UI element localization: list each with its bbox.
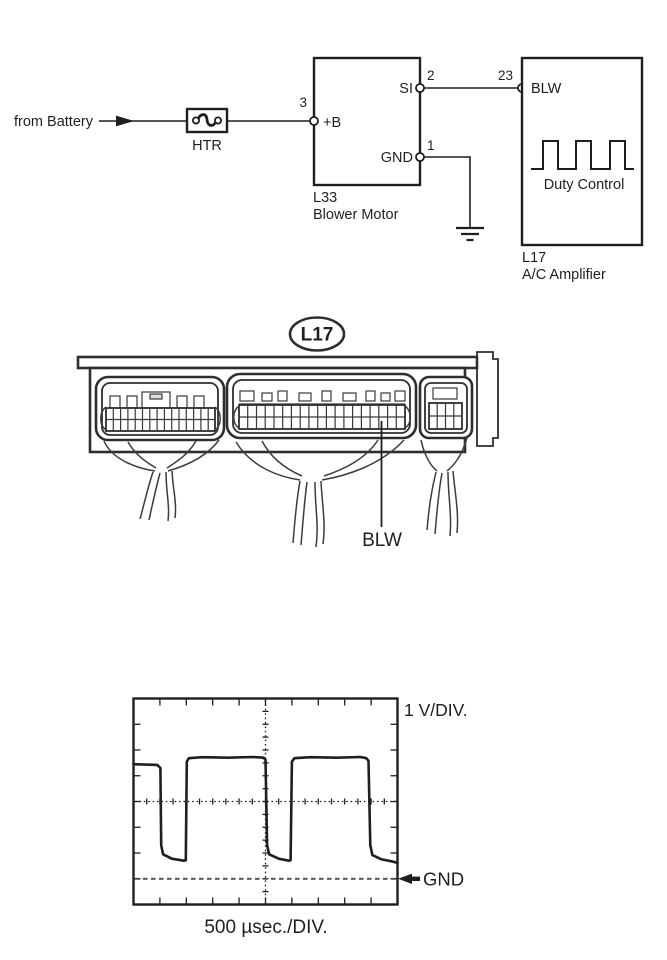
connector-left: [96, 377, 224, 440]
fuse-icon: [187, 109, 227, 132]
from-battery-label: from Battery: [14, 114, 94, 130]
service-manual-page: from Battery HTR 3 +B SI 2 GND 1 L33 Blo…: [0, 0, 667, 960]
pin-si-label: SI: [399, 81, 413, 97]
vertical-scale-label: 1 V/DIV.: [404, 700, 468, 720]
horizontal-scale-label: 500 µsec./DIV.: [204, 917, 327, 938]
pin-gnd: [416, 153, 424, 161]
ground-icon: [456, 228, 484, 240]
pin-b-plus: [310, 117, 318, 125]
gnd-reference-label: GND: [423, 869, 464, 890]
ac-amplifier-name: A/C Amplifier: [522, 267, 606, 283]
pin-si-number: 2: [427, 68, 435, 83]
diagram-canvas: from Battery HTR 3 +B SI 2 GND 1 L33 Blo…: [0, 0, 667, 960]
fuse-label: HTR: [192, 138, 222, 154]
blower-motor-name: Blower Motor: [313, 207, 399, 223]
flow-arrow-icon: [116, 116, 134, 127]
wiring-diagram: from Battery HTR 3 +B SI 2 GND 1 L33 Blo…: [14, 58, 642, 283]
blw-terminal-label: BLW: [362, 530, 402, 551]
component-oval-label: L17: [301, 325, 334, 346]
duty-control-label: Duty Control: [544, 177, 625, 193]
ac-amplifier-code: L17: [522, 250, 546, 266]
pin-gnd-label: GND: [381, 150, 413, 166]
pin-si: [416, 84, 424, 92]
pin-b-plus-number: 3: [299, 95, 307, 110]
pin-blw-label: BLW: [531, 81, 562, 97]
harness-bundles: [104, 438, 467, 547]
gnd-wire: [424, 157, 470, 227]
connector-right: [420, 377, 472, 438]
blower-motor-code: L33: [313, 190, 337, 206]
amplifier-top-rail: [78, 357, 477, 368]
gnd-arrow-icon: [398, 874, 420, 884]
connector-middle: [227, 374, 416, 438]
pin-blw-number: 23: [498, 68, 513, 83]
pin-gnd-number: 1: [427, 138, 435, 153]
oscilloscope-panel: 1 V/DIV. GND 500 µsec./DIV.: [134, 699, 468, 939]
mounting-bracket: [477, 352, 498, 446]
pin-b-plus-label: +B: [323, 115, 341, 131]
connector-location-view: L17: [78, 318, 498, 552]
